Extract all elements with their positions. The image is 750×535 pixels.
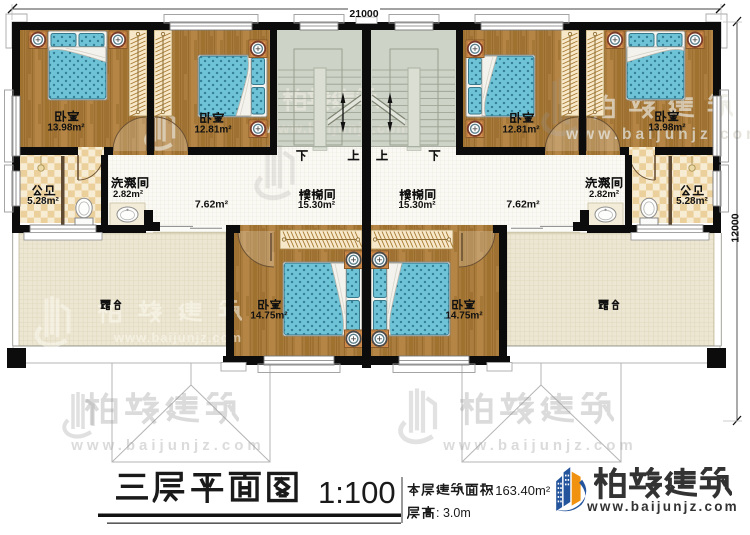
svg-text:15.30m²: 15.30m² <box>398 200 436 211</box>
svg-text:www.baijunjz.com: www.baijunjz.com <box>586 499 739 514</box>
svg-text:: 163.40m²: : 163.40m² <box>488 483 551 498</box>
svg-text:15.30m²: 15.30m² <box>298 200 336 211</box>
svg-text:7.62m²: 7.62m² <box>506 199 540 211</box>
svg-text:: 3.0m: : 3.0m <box>436 506 471 520</box>
svg-text:14.75m²: 14.75m² <box>445 311 483 322</box>
svg-text:12.81m²: 12.81m² <box>194 125 232 136</box>
svg-text:2.82m²: 2.82m² <box>113 189 143 200</box>
svg-text:www.baijunjz.com: www.baijunjz.com <box>113 330 242 345</box>
svg-text:12.81m²: 12.81m² <box>502 125 540 136</box>
svg-text:2.82m²: 2.82m² <box>589 189 619 200</box>
svg-text:12000: 12000 <box>730 213 742 242</box>
svg-text:www.baijunjz.com: www.baijunjz.com <box>70 437 264 454</box>
svg-text:14.75m²: 14.75m² <box>250 311 288 322</box>
svg-text:13.98m²: 13.98m² <box>47 123 85 134</box>
svg-text:5.28m²: 5.28m² <box>27 196 59 207</box>
svg-text:13.98m²: 13.98m² <box>648 123 686 134</box>
svg-text:7.62m²: 7.62m² <box>195 199 229 211</box>
svg-text:1:100: 1:100 <box>318 475 396 510</box>
svg-text:5.28m²: 5.28m² <box>676 196 708 207</box>
svg-text:www.baijunjz.com: www.baijunjz.com <box>442 437 636 454</box>
svg-text:21000: 21000 <box>349 8 378 20</box>
